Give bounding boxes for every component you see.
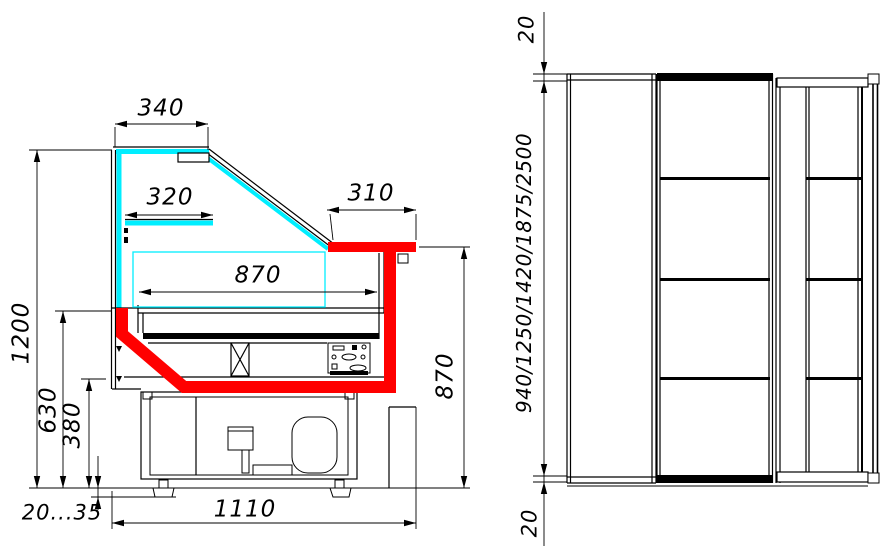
dim-arrow bbox=[34, 476, 40, 488]
dim-340-label: 340 bbox=[138, 98, 185, 121]
evaporator bbox=[231, 343, 249, 376]
dim-arrow bbox=[95, 476, 101, 488]
sloped-glass-inner bbox=[207, 153, 331, 247]
dim-arrow bbox=[541, 482, 547, 494]
dim-arrow bbox=[86, 379, 92, 391]
compressor-dome bbox=[292, 417, 337, 473]
drain-tray bbox=[253, 465, 292, 475]
inner-liner bbox=[133, 252, 325, 307]
dim-20-bottom-label: 20 bbox=[520, 509, 541, 538]
base-corner-bolt bbox=[345, 392, 354, 399]
dim-870-height-label: 870 bbox=[435, 353, 458, 400]
sloped-glass-outer bbox=[209, 149, 334, 244]
worktop-strip bbox=[777, 78, 868, 87]
technical-drawing-page: { "colors": { "accent_red": "#ff0000", "… bbox=[0, 0, 894, 559]
shelf-divider bbox=[660, 177, 770, 180]
dim-arrow bbox=[112, 520, 124, 526]
dim-arrow bbox=[201, 212, 213, 218]
foot-stem bbox=[335, 480, 344, 488]
sloped-glass bbox=[205, 156, 328, 249]
dim-arrow bbox=[60, 476, 66, 488]
terminal bbox=[352, 345, 357, 350]
dim-lengths-label: 940/1250/1420/1875/2500 bbox=[514, 133, 534, 413]
dim-870-width-label: 870 bbox=[235, 265, 282, 288]
plan-front-strip bbox=[567, 74, 656, 483]
dim-arrow bbox=[404, 207, 416, 213]
control-box-base bbox=[330, 371, 368, 375]
dim-1200-label: 1200 bbox=[11, 302, 34, 365]
base-corner-bolt bbox=[143, 392, 152, 399]
dim-arrow bbox=[461, 476, 467, 488]
dim-1110-label: 1110 bbox=[214, 499, 277, 522]
lamp-housing bbox=[178, 153, 209, 162]
foot-stem bbox=[159, 480, 168, 488]
airflow-mark bbox=[116, 346, 122, 352]
dim-leg-range-label: 20...35 bbox=[22, 503, 102, 524]
drawing-canvas bbox=[0, 0, 894, 559]
control-box bbox=[328, 343, 370, 375]
dim-arrow bbox=[139, 289, 151, 295]
shelf-bracket bbox=[124, 237, 128, 243]
dim-arrow bbox=[196, 121, 208, 127]
adjustable-feet bbox=[153, 480, 351, 497]
machine-compartment bbox=[141, 392, 416, 488]
airflow-mark bbox=[116, 376, 122, 382]
shelf-divider bbox=[660, 377, 770, 380]
dim-arrow bbox=[86, 476, 92, 488]
compressor-stem bbox=[242, 450, 249, 473]
dim-arrow bbox=[541, 464, 547, 476]
dim-arrow bbox=[404, 520, 416, 526]
worktop-clip bbox=[398, 254, 408, 263]
worktop-strip bbox=[777, 472, 868, 482]
ext-line bbox=[330, 214, 333, 240]
red-worktop-bar bbox=[328, 242, 416, 252]
dim-320-label: 320 bbox=[147, 187, 194, 210]
dim-310-label: 310 bbox=[348, 183, 395, 206]
shelf-divider bbox=[806, 177, 862, 180]
dim-arrow bbox=[327, 207, 339, 213]
plan-view-dimensions bbox=[533, 12, 567, 546]
dim-arrow bbox=[125, 212, 137, 218]
dim-380-label: 380 bbox=[62, 402, 85, 449]
shelf-divider bbox=[660, 278, 770, 281]
shelf-divider bbox=[806, 278, 862, 281]
dim-arrow bbox=[34, 150, 40, 162]
dim-arrow bbox=[461, 247, 467, 259]
dim-630-label: 630 bbox=[38, 387, 61, 434]
plan-body-section bbox=[657, 73, 773, 483]
corner-notch bbox=[868, 473, 879, 483]
shelf-divider bbox=[806, 377, 862, 380]
dim-arrow bbox=[365, 289, 377, 295]
dim-arrow bbox=[541, 62, 547, 74]
dim-arrow bbox=[541, 81, 547, 93]
end-cap bbox=[657, 475, 773, 483]
dim-arrow bbox=[60, 311, 66, 323]
dim-20-top-label: 20 bbox=[517, 15, 538, 44]
dim-arrow bbox=[115, 121, 127, 127]
plan-view bbox=[567, 73, 879, 486]
foot-base bbox=[153, 488, 174, 497]
foot-base bbox=[330, 488, 351, 497]
corner-notch bbox=[868, 74, 879, 84]
shelf-bracket bbox=[124, 228, 128, 233]
end-cap bbox=[657, 73, 773, 81]
compressor-box bbox=[228, 427, 253, 450]
deck-panel bbox=[143, 333, 379, 339]
